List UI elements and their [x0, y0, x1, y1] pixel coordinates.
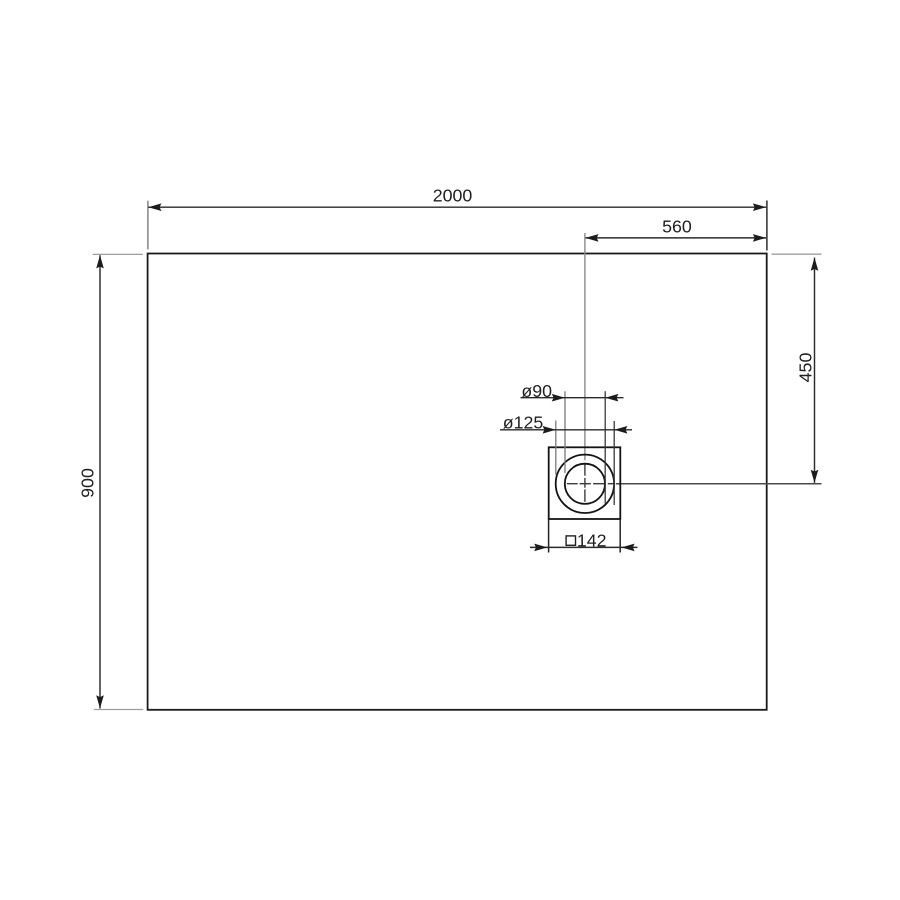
svg-text:450: 450 — [796, 353, 816, 383]
svg-text:2000: 2000 — [433, 186, 473, 206]
svg-text:ø125: ø125 — [503, 413, 544, 433]
svg-text:ø90: ø90 — [521, 381, 552, 401]
svg-text:560: 560 — [662, 217, 692, 237]
svg-text:142: 142 — [577, 530, 607, 550]
svg-text:900: 900 — [77, 468, 97, 498]
